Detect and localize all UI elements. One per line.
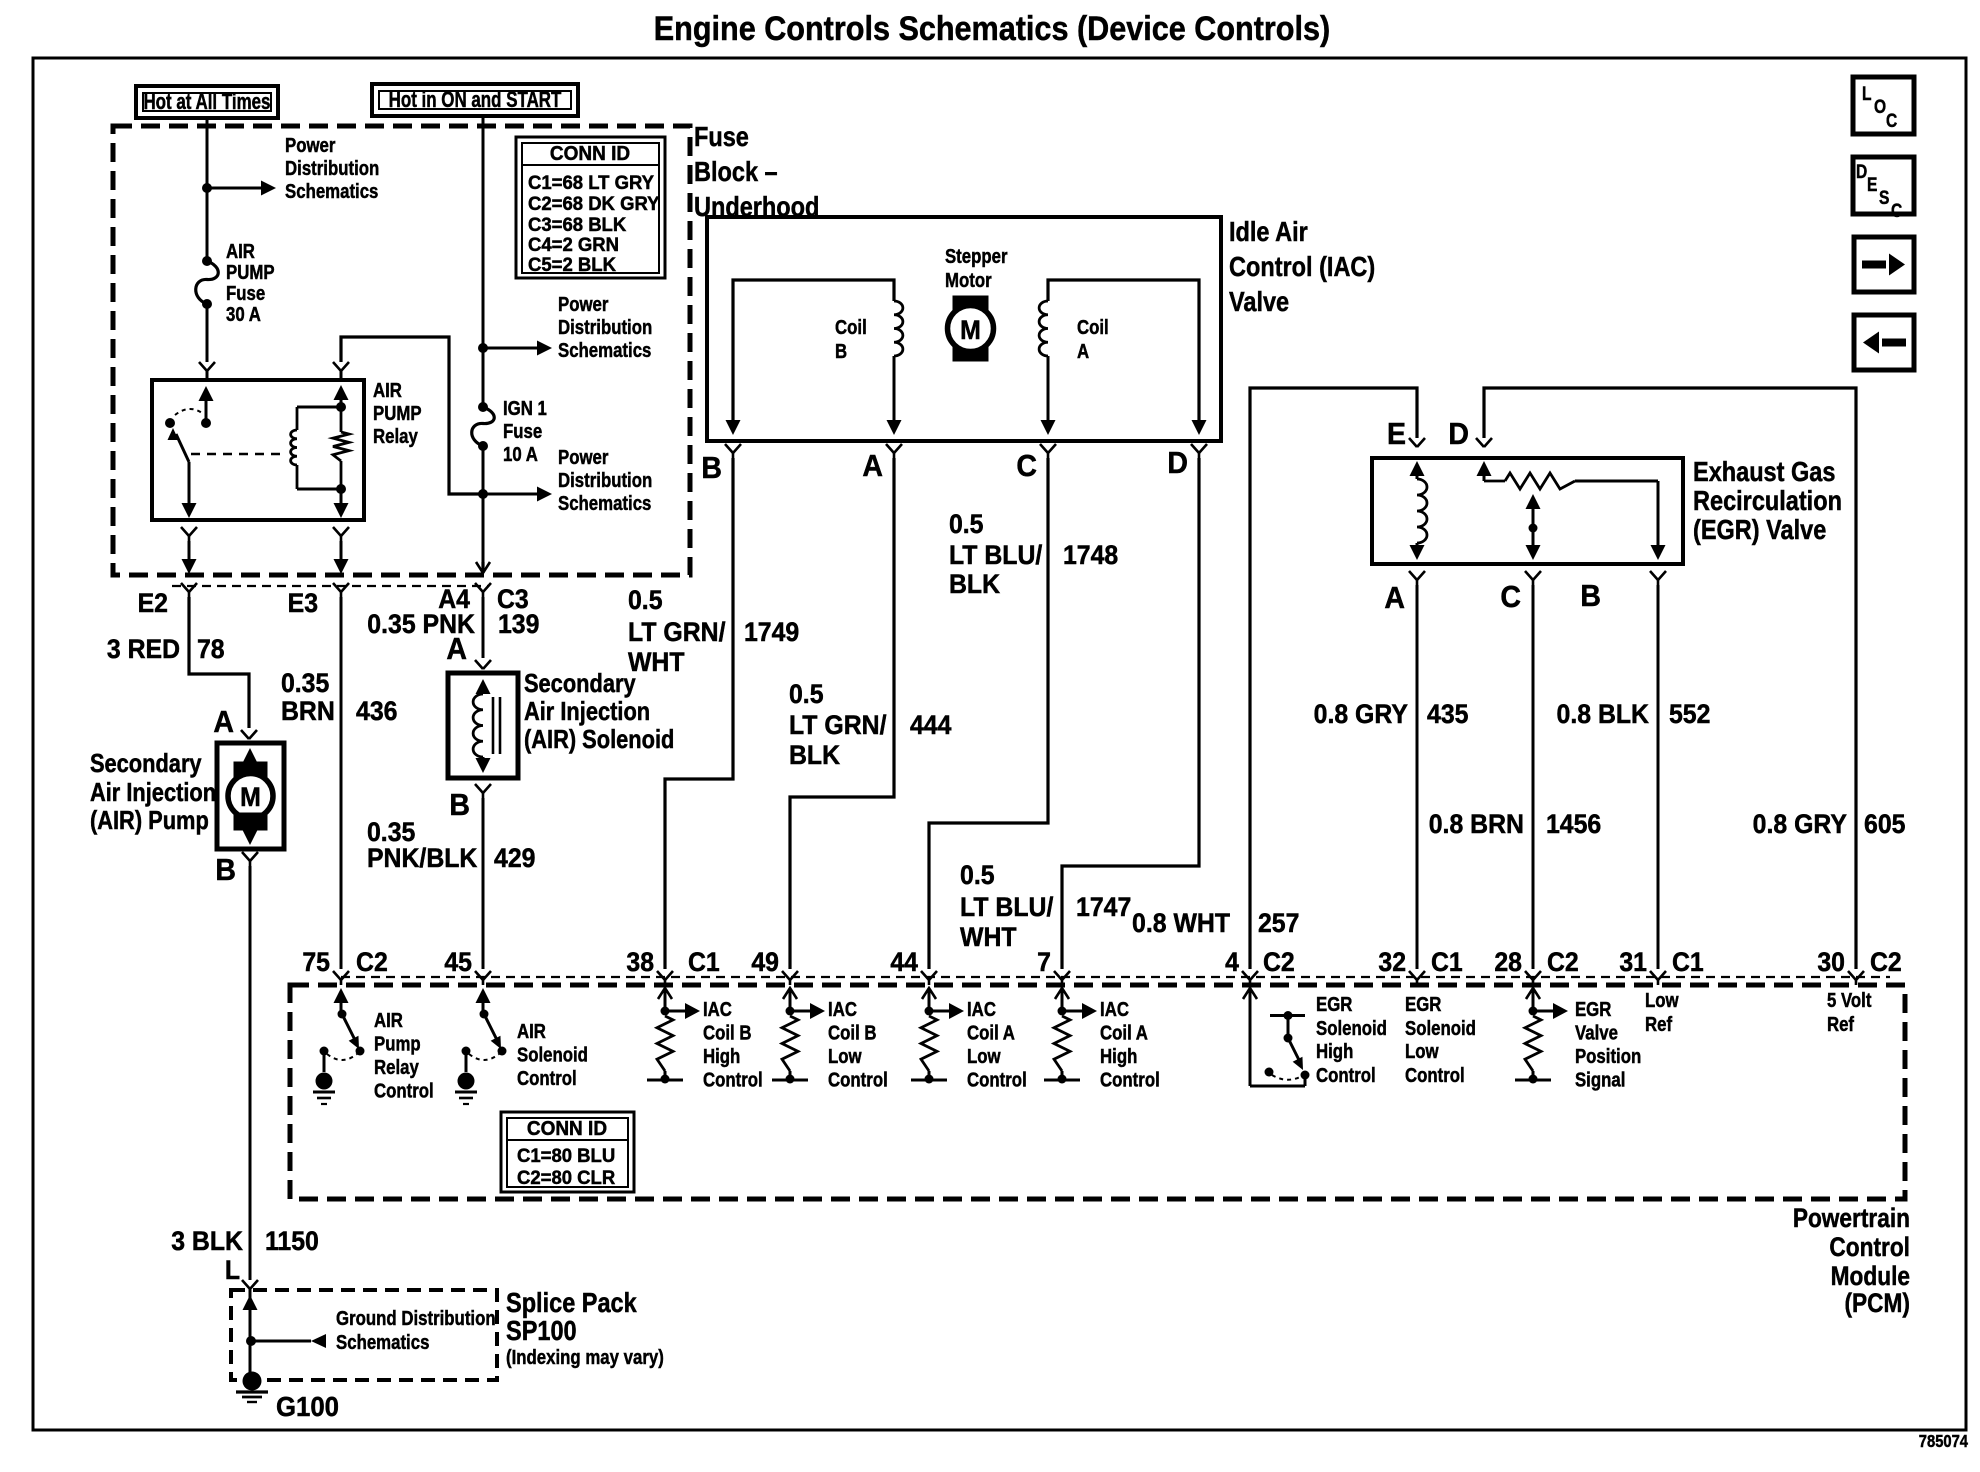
svg-text:0.5: 0.5 — [949, 510, 984, 539]
svg-text:436: 436 — [356, 697, 397, 726]
svg-text:28: 28 — [1494, 948, 1522, 977]
svg-text:1150: 1150 — [265, 1227, 319, 1256]
svg-text:M: M — [240, 783, 261, 812]
svg-text:Power: Power — [558, 445, 608, 468]
svg-text:Secondary: Secondary — [524, 669, 636, 698]
svg-text:Power: Power — [558, 292, 608, 315]
svg-text:Distribution: Distribution — [558, 315, 652, 338]
svg-text:Relay: Relay — [374, 1055, 419, 1078]
svg-text:Module: Module — [1831, 1261, 1910, 1291]
svg-text:0.8 WHT: 0.8 WHT — [1132, 909, 1230, 938]
svg-text:High: High — [703, 1044, 740, 1067]
svg-text:785074: 785074 — [1919, 1432, 1969, 1452]
svg-text:Distribution: Distribution — [285, 156, 379, 179]
svg-text:Low: Low — [1405, 1039, 1439, 1062]
svg-text:Block –: Block – — [694, 157, 778, 187]
svg-text:S: S — [1879, 187, 1889, 209]
svg-text:Fuse: Fuse — [694, 122, 749, 152]
svg-text:Engine Controls Schematics (De: Engine Controls Schematics (Device Contr… — [654, 10, 1330, 48]
svg-text:IAC: IAC — [967, 997, 996, 1020]
svg-text:EGR: EGR — [1575, 997, 1612, 1020]
svg-text:Solenoid: Solenoid — [1316, 1016, 1387, 1039]
svg-text:PUMP: PUMP — [373, 401, 422, 424]
svg-text:C5=2 BLK: C5=2 BLK — [528, 255, 616, 277]
svg-text:Control (IAC): Control (IAC) — [1229, 252, 1375, 282]
svg-text:38: 38 — [626, 948, 654, 977]
svg-text:C1: C1 — [1431, 948, 1463, 977]
svg-text:C2=80 CLR: C2=80 CLR — [517, 1168, 615, 1190]
svg-text:A: A — [213, 705, 234, 739]
svg-text:444: 444 — [910, 711, 952, 740]
svg-text:0.35: 0.35 — [281, 669, 329, 698]
svg-text:(AIR) Solenoid: (AIR) Solenoid — [524, 725, 674, 754]
svg-text:E: E — [1387, 417, 1406, 451]
svg-text:30 A: 30 A — [226, 302, 261, 325]
svg-text:C2: C2 — [1263, 948, 1295, 977]
svg-text:C2: C2 — [1870, 948, 1902, 977]
svg-text:BLK: BLK — [949, 570, 1000, 599]
svg-text:A: A — [862, 449, 883, 483]
svg-text:(Indexing may vary): (Indexing may vary) — [506, 1345, 664, 1368]
svg-text:IAC: IAC — [828, 997, 857, 1020]
svg-text:257: 257 — [1258, 909, 1299, 938]
svg-text:Schematics: Schematics — [558, 338, 651, 361]
svg-text:Exhaust Gas: Exhaust Gas — [1693, 457, 1835, 487]
svg-text:G100: G100 — [276, 1391, 339, 1422]
svg-text:IAC: IAC — [703, 997, 732, 1020]
svg-text:AIR: AIR — [517, 1019, 546, 1042]
svg-text:Coil A: Coil A — [1100, 1021, 1148, 1044]
svg-text:Control: Control — [703, 1068, 763, 1091]
svg-text:Position: Position — [1575, 1044, 1641, 1067]
svg-text:1749: 1749 — [744, 618, 799, 647]
svg-text:Coil: Coil — [1077, 315, 1109, 338]
svg-text:A: A — [446, 632, 467, 666]
svg-text:C: C — [1886, 110, 1898, 132]
svg-text:32: 32 — [1378, 948, 1406, 977]
svg-text:75: 75 — [302, 948, 330, 977]
svg-text:10 A: 10 A — [503, 442, 538, 465]
svg-text:435: 435 — [1427, 700, 1468, 729]
svg-text:WHT: WHT — [960, 923, 1017, 952]
svg-text:49: 49 — [751, 948, 779, 977]
svg-text:C1=80 BLU: C1=80 BLU — [517, 1146, 615, 1168]
svg-text:Stepper: Stepper — [945, 244, 1008, 267]
svg-text:Ground Distribution: Ground Distribution — [336, 1306, 496, 1329]
svg-text:Solenoid: Solenoid — [517, 1043, 588, 1066]
svg-text:EGR: EGR — [1405, 992, 1442, 1015]
svg-text:C1=68 LT GRY: C1=68 LT GRY — [528, 173, 654, 195]
svg-text:O: O — [1874, 96, 1886, 118]
svg-text:Control: Control — [1316, 1063, 1376, 1086]
svg-text:0.8 BRN: 0.8 BRN — [1429, 810, 1524, 839]
svg-text:Powertrain: Powertrain — [1793, 1203, 1910, 1233]
svg-text:Low: Low — [1645, 988, 1679, 1011]
svg-text:4: 4 — [1225, 948, 1239, 977]
svg-text:44: 44 — [890, 948, 918, 977]
svg-text:AIR: AIR — [226, 239, 255, 262]
svg-text:D: D — [1167, 446, 1188, 480]
svg-text:(EGR) Valve: (EGR) Valve — [1693, 515, 1826, 545]
svg-text:CONN ID: CONN ID — [550, 143, 630, 166]
svg-text:B: B — [215, 853, 236, 887]
svg-text:0.5: 0.5 — [628, 586, 663, 615]
svg-text:Idle Air: Idle Air — [1229, 217, 1308, 247]
svg-text:B: B — [835, 339, 847, 362]
svg-text:Secondary: Secondary — [90, 749, 202, 778]
svg-text:429: 429 — [494, 844, 535, 873]
svg-text:AIR: AIR — [374, 1008, 403, 1031]
svg-text:Hot at All Times: Hot at All Times — [143, 90, 270, 115]
svg-text:Control: Control — [1829, 1232, 1910, 1262]
svg-text:Coil: Coil — [835, 315, 867, 338]
svg-text:LT BLU/: LT BLU/ — [960, 893, 1053, 922]
svg-text:PNK/BLK: PNK/BLK — [367, 844, 478, 873]
svg-text:M: M — [960, 316, 981, 345]
svg-text:C2: C2 — [1547, 948, 1579, 977]
svg-text:Low: Low — [828, 1044, 862, 1067]
svg-text:BRN: BRN — [281, 697, 335, 726]
svg-text:Power: Power — [285, 133, 335, 156]
svg-text:High: High — [1316, 1039, 1353, 1062]
svg-text:A: A — [1384, 581, 1405, 615]
svg-text:5 Volt: 5 Volt — [1827, 988, 1872, 1011]
svg-text:Distribution: Distribution — [558, 468, 652, 491]
svg-text:B: B — [1580, 579, 1601, 613]
svg-text:Schematics: Schematics — [558, 491, 651, 514]
svg-text:Ref: Ref — [1827, 1012, 1855, 1035]
svg-text:Control: Control — [1100, 1068, 1160, 1091]
svg-text:LT GRN/: LT GRN/ — [628, 618, 725, 647]
svg-text:PUMP: PUMP — [226, 260, 275, 283]
svg-text:Air Injection: Air Injection — [90, 778, 216, 807]
svg-text:Valve: Valve — [1229, 287, 1289, 317]
svg-text:Air Injection: Air Injection — [524, 697, 650, 726]
svg-text:C1: C1 — [688, 948, 720, 977]
svg-text:L: L — [1862, 83, 1872, 105]
svg-text:E: E — [1867, 174, 1877, 196]
svg-text:0.8 BLK: 0.8 BLK — [1557, 700, 1650, 729]
svg-text:139: 139 — [498, 610, 539, 639]
svg-text:Ref: Ref — [1645, 1012, 1673, 1035]
svg-text:High: High — [1100, 1044, 1137, 1067]
svg-text:Coil A: Coil A — [967, 1021, 1015, 1044]
svg-text:Control: Control — [517, 1066, 577, 1089]
svg-text:Pump: Pump — [374, 1032, 421, 1055]
svg-text:SP100: SP100 — [506, 1316, 577, 1346]
svg-text:LT GRN/: LT GRN/ — [789, 711, 886, 740]
svg-text:AIR: AIR — [373, 378, 402, 401]
svg-text:Signal: Signal — [1575, 1068, 1625, 1091]
svg-text:D: D — [1448, 417, 1469, 451]
svg-text:1748: 1748 — [1063, 541, 1118, 570]
svg-text:Coil B: Coil B — [828, 1021, 877, 1044]
svg-text:3 RED: 3 RED — [107, 635, 180, 664]
svg-text:D: D — [1856, 161, 1867, 183]
svg-text:BLK: BLK — [789, 741, 840, 770]
svg-text:Low: Low — [967, 1044, 1001, 1067]
svg-text:Control: Control — [967, 1068, 1027, 1091]
svg-text:45: 45 — [444, 948, 472, 977]
svg-text:Valve: Valve — [1575, 1021, 1618, 1044]
svg-text:E3: E3 — [288, 589, 318, 618]
svg-text:B: B — [701, 451, 722, 485]
svg-text:C: C — [1500, 580, 1521, 614]
svg-text:7: 7 — [1037, 948, 1051, 977]
svg-text:C2=68 DK GRY: C2=68 DK GRY — [528, 194, 660, 216]
svg-text:Coil B: Coil B — [703, 1021, 752, 1044]
svg-text:B: B — [449, 788, 470, 822]
svg-text:EGR: EGR — [1316, 992, 1353, 1015]
svg-text:Relay: Relay — [373, 424, 418, 447]
svg-text:1747: 1747 — [1076, 893, 1131, 922]
svg-text:IGN 1: IGN 1 — [503, 396, 547, 419]
svg-text:78: 78 — [197, 635, 225, 664]
svg-text:IAC: IAC — [1100, 997, 1129, 1020]
svg-text:31: 31 — [1619, 948, 1647, 977]
svg-text:Schematics: Schematics — [336, 1330, 429, 1353]
svg-text:605: 605 — [1864, 810, 1905, 839]
svg-text:552: 552 — [1669, 700, 1710, 729]
svg-text:A: A — [1077, 339, 1090, 362]
svg-text:Control: Control — [374, 1079, 434, 1102]
svg-text:Control: Control — [1405, 1063, 1465, 1086]
svg-text:Fuse: Fuse — [503, 419, 542, 442]
svg-text:LT BLU/: LT BLU/ — [949, 541, 1042, 570]
svg-text:Recirculation: Recirculation — [1693, 486, 1842, 516]
svg-text:L: L — [225, 1256, 240, 1285]
svg-text:0.5: 0.5 — [789, 680, 824, 709]
svg-text:CONN ID: CONN ID — [527, 1118, 607, 1141]
svg-text:3 BLK: 3 BLK — [171, 1227, 243, 1256]
svg-text:C4=2 GRN: C4=2 GRN — [528, 235, 619, 257]
svg-text:C: C — [1016, 449, 1037, 483]
svg-text:Schematics: Schematics — [285, 179, 378, 202]
svg-text:Solenoid: Solenoid — [1405, 1016, 1476, 1039]
svg-text:30: 30 — [1817, 948, 1845, 977]
svg-text:(PCM): (PCM) — [1845, 1288, 1910, 1318]
svg-text:E2: E2 — [138, 589, 168, 618]
svg-text:C: C — [1891, 200, 1903, 222]
svg-text:C2: C2 — [356, 948, 388, 977]
svg-text:0.8 GRY: 0.8 GRY — [1753, 810, 1847, 839]
svg-text:0.8 GRY: 0.8 GRY — [1314, 700, 1408, 729]
svg-text:1456: 1456 — [1546, 810, 1601, 839]
svg-text:WHT: WHT — [628, 648, 685, 677]
svg-text:C3=68 BLK: C3=68 BLK — [528, 215, 626, 237]
svg-text:(AIR) Pump: (AIR) Pump — [90, 806, 209, 835]
svg-text:Motor: Motor — [945, 268, 992, 291]
svg-text:Hot in ON and START: Hot in ON and START — [389, 88, 562, 113]
svg-text:0.35: 0.35 — [367, 818, 415, 847]
svg-text:0.5: 0.5 — [960, 861, 995, 890]
svg-text:Splice Pack: Splice Pack — [506, 1288, 637, 1318]
svg-text:Fuse: Fuse — [226, 281, 265, 304]
svg-text:C1: C1 — [1672, 948, 1704, 977]
svg-text:Control: Control — [828, 1068, 888, 1091]
